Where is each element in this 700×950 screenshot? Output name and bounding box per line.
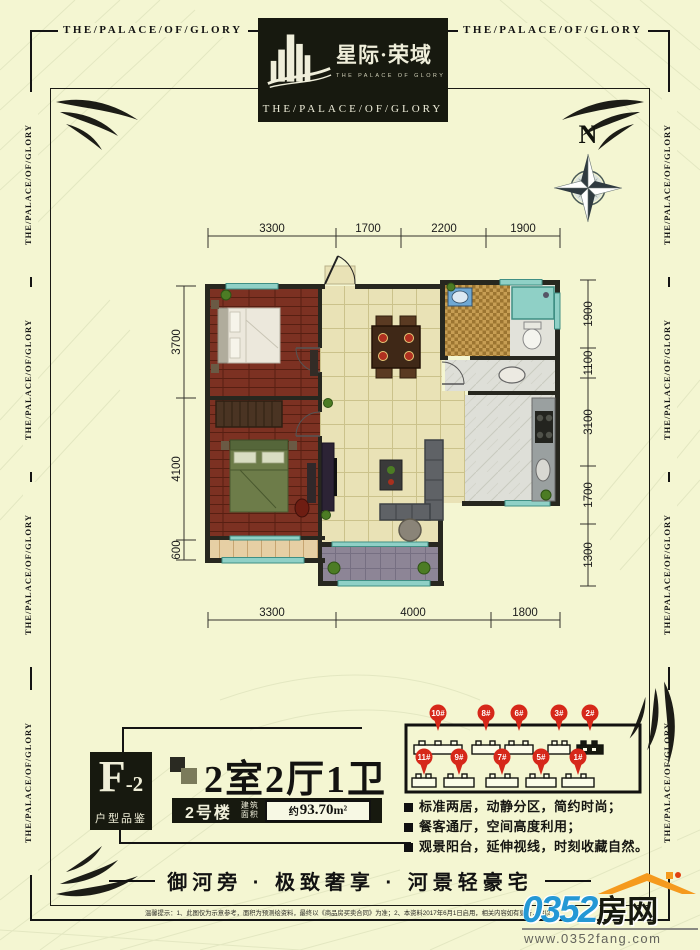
- pin-6: 6#: [511, 705, 528, 732]
- unit-code-suffix: -2: [126, 772, 144, 796]
- square-bullet-icon: [404, 823, 413, 832]
- connector-line-top-drop: [122, 727, 124, 754]
- svg-text:8#: 8#: [482, 709, 491, 718]
- site-plan: 10# 8# 6# 3# 2# 11# 9# 7# 5# 1#: [402, 698, 646, 798]
- portal-logo-divider: [522, 928, 698, 930]
- svg-text:3#: 3#: [555, 709, 564, 718]
- pin-10: 10#: [430, 705, 447, 732]
- coffee-table: [380, 460, 402, 490]
- brand-plaque: 星际·荣域 THE PALACE OF GLORY THE/PALACE/OF/…: [258, 18, 448, 122]
- svg-text:9#: 9#: [455, 753, 464, 762]
- feature-item: 餐客通厅，空间高度利用；: [404, 819, 646, 835]
- area-unit: m²: [333, 803, 347, 818]
- square-bullet-icon: [404, 843, 413, 852]
- border-motto-left-2: THE/PALACE/OF/GLORY: [23, 287, 38, 472]
- svg-text:6#: 6#: [515, 709, 524, 718]
- site-buildings-bottom: [412, 774, 594, 787]
- area-approx: 约: [289, 803, 299, 818]
- site-pins: 10# 8# 6# 3# 2# 11# 9# 7# 5# 1#: [416, 705, 599, 776]
- dim-right-4: 1700: [583, 482, 595, 508]
- brand-motto-band: THE/PALACE/OF/GLORY: [258, 103, 448, 115]
- brand-name-en: THE PALACE OF GLORY: [336, 73, 445, 79]
- dim-right-3: 3100: [583, 409, 595, 435]
- connector-line-bottom: [119, 842, 411, 844]
- dim-top-1: 3300: [259, 223, 285, 235]
- feature-item: 观景阳台，延伸视线，时刻收藏自然。: [404, 839, 646, 855]
- border-motto-right-1: THE/PALACE/OF/GLORY: [662, 92, 677, 277]
- svg-text:5#: 5#: [537, 753, 546, 762]
- shower: [512, 287, 554, 319]
- border-motto-left-4: THE/PALACE/OF/GLORY: [23, 690, 38, 875]
- border-motto-left-1: THE/PALACE/OF/GLORY: [23, 92, 38, 277]
- dining-set: [372, 316, 420, 378]
- deco-square-olive: [181, 768, 197, 784]
- dim-left-2: 4100: [171, 456, 183, 482]
- pin-7: 7#: [494, 749, 511, 776]
- svg-text:2#: 2#: [586, 709, 595, 718]
- pin-3: 3#: [551, 705, 568, 732]
- svg-text:10#: 10#: [431, 709, 445, 718]
- border-motto-right-3: THE/PALACE/OF/GLORY: [662, 482, 677, 667]
- brand-name-cn: 星际·荣域: [336, 39, 445, 69]
- unit-badge: F-2 户型品鉴: [90, 752, 152, 830]
- building-bar: 2号楼 建筑 面积 约 93.70 m²: [172, 798, 382, 823]
- disclaimer-text: 温馨提示：1、此图仅为示意参考，面积为预测绘资料，最终以《商品房买卖合同》为准；…: [145, 908, 550, 917]
- poster-page: THE/PALACE/OF/GLORY THE/PALACE/OF/GLORY …: [0, 0, 700, 950]
- svg-text:11#: 11#: [418, 753, 431, 762]
- bed-second: [221, 440, 297, 512]
- dim-left-1: 3700: [171, 329, 183, 355]
- dim-left-3: 600: [171, 540, 183, 559]
- svg-text:7#: 7#: [498, 753, 507, 762]
- area-label-line2: 面积: [241, 810, 259, 819]
- border-motto-left-3: THE/PALACE/OF/GLORY: [23, 482, 38, 667]
- tagline-dash-left: [109, 880, 155, 882]
- site-plan-frame: [406, 725, 640, 792]
- dim-bottom-3: 1800: [512, 607, 538, 619]
- desk-second: [307, 463, 316, 503]
- border-motto-top-right: THE/PALACE/OF/GLORY: [458, 23, 648, 37]
- feature-item: 标准两居，动静分区，简约时尚；: [404, 799, 646, 815]
- feature-text-3: 观景阳台，延伸视线，时刻收藏自然。: [419, 839, 649, 855]
- compass-north-label: N: [548, 122, 628, 148]
- room-corridor: [442, 391, 465, 503]
- dim-right-1: 1900: [583, 301, 595, 327]
- svg-text:1#: 1#: [574, 753, 583, 762]
- building-9: [444, 774, 474, 787]
- floor-plan: 3300 1700 2200 1900 3300 4000 1800 3700 …: [80, 208, 620, 648]
- portal-logo-cn: 房网: [596, 894, 658, 929]
- vase: [295, 499, 309, 517]
- connector-line-top: [122, 727, 362, 729]
- dim-bottom-1: 3300: [259, 607, 285, 619]
- vanity-sink: [499, 367, 525, 383]
- feature-text-1: 标准两居，动静分区，简约时尚；: [419, 799, 622, 815]
- area-value-box: 约 93.70 m²: [265, 800, 371, 822]
- lounge-chair: [399, 519, 421, 541]
- skyline-wave-icon: [266, 28, 332, 90]
- area-label: 建筑 面积: [241, 802, 259, 819]
- border-motto-top-left: THE/PALACE/OF/GLORY: [58, 23, 248, 37]
- building-5: [526, 774, 556, 787]
- dim-bottom-2: 4000: [400, 607, 426, 619]
- dim-top-4: 1900: [510, 223, 536, 235]
- building-3: [548, 741, 570, 754]
- square-bullet-icon: [404, 803, 413, 812]
- dim-top-2: 1700: [355, 223, 381, 235]
- building-11: [412, 774, 436, 787]
- layout-title: 2室2厅1卫: [204, 748, 387, 803]
- corner-leaf-ornament-top-left: [54, 96, 144, 154]
- tagline-text: 御河旁 · 极致奢享 · 河景轻豪宅: [167, 866, 533, 895]
- pin-2: 2#: [582, 705, 599, 732]
- unit-code: F: [99, 752, 126, 801]
- kitchen-counter: [532, 398, 555, 501]
- feature-text-2: 餐客通厅，空间高度利用；: [419, 819, 581, 835]
- building-number: 2号楼: [185, 799, 232, 823]
- pin-11: 11#: [416, 749, 433, 776]
- portal-url: www.0352fang.com: [524, 931, 661, 946]
- building-1: [562, 774, 594, 787]
- pin-8: 8#: [478, 705, 495, 732]
- portal-logo: 0352房网 www.0352fang.com: [522, 874, 700, 950]
- area-value: 93.70: [300, 802, 334, 819]
- bed-master: [211, 300, 280, 373]
- border-motto-right-2: THE/PALACE/OF/GLORY: [662, 287, 677, 472]
- feature-list: 标准两居，动静分区，简约时尚； 餐客通厅，空间高度利用； 观景阳台，延伸视线，时…: [404, 799, 646, 859]
- dim-right-2: 1100: [583, 351, 595, 376]
- unit-code-subtitle: 户型品鉴: [90, 810, 152, 826]
- pin-1: 1#: [570, 749, 587, 776]
- portal-logo-number: 0352: [522, 889, 596, 930]
- building-7: [486, 774, 518, 787]
- dresser-master: [310, 350, 318, 376]
- dim-right-5: 1300: [583, 542, 595, 568]
- toilet: [523, 322, 541, 349]
- pin-5: 5#: [533, 749, 550, 776]
- pin-9: 9#: [451, 749, 468, 776]
- dim-top-3: 2200: [431, 223, 457, 235]
- building-6: [505, 741, 533, 754]
